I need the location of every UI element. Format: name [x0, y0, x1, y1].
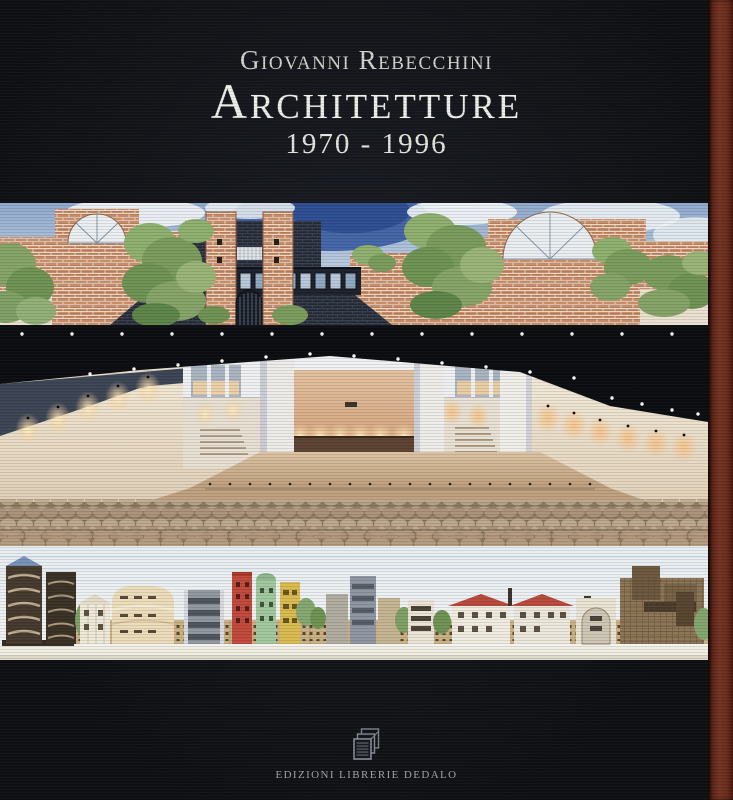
grey-balcony-slab: [184, 590, 224, 644]
seat-rows: [0, 499, 708, 546]
publisher-logo-icon: [353, 728, 381, 760]
white-slab-building: [408, 600, 434, 644]
red-tower: [232, 572, 252, 644]
green-tower: [256, 573, 276, 644]
city-elevation-illustration: [0, 546, 708, 660]
tree: [433, 610, 451, 634]
stage: [287, 356, 417, 452]
brick-gate-illustration: [0, 203, 708, 325]
artwork-brick-gate-elevation: [0, 203, 708, 325]
photo-auditorium-interior: [0, 326, 708, 546]
publisher-name: EDIZIONI LIBRERIE DEDALO: [0, 769, 733, 781]
publisher-block: EDIZIONI LIBRERIE DEDALO: [0, 728, 733, 781]
helicopter: [584, 596, 591, 598]
arched-portal: [236, 290, 262, 325]
pediment-building: [78, 594, 112, 644]
stage-apron: [190, 452, 610, 488]
tree: [310, 607, 326, 629]
arched-building: [576, 598, 616, 644]
title-years: 1970 - 1996: [0, 128, 733, 161]
left-balcony-opening: [191, 365, 241, 397]
artwork-city-elevation: [0, 546, 708, 660]
scanned-book-cover: Giovanni Rebecchini Architetture 1970 - …: [0, 0, 733, 800]
auditorium-photo: [0, 326, 708, 546]
curved-cream-building: [112, 586, 174, 644]
book-title: Architetture: [0, 72, 733, 130]
front-cover: Giovanni Rebecchini Architetture 1970 - …: [0, 0, 708, 800]
book-spine-edge: [708, 0, 733, 800]
